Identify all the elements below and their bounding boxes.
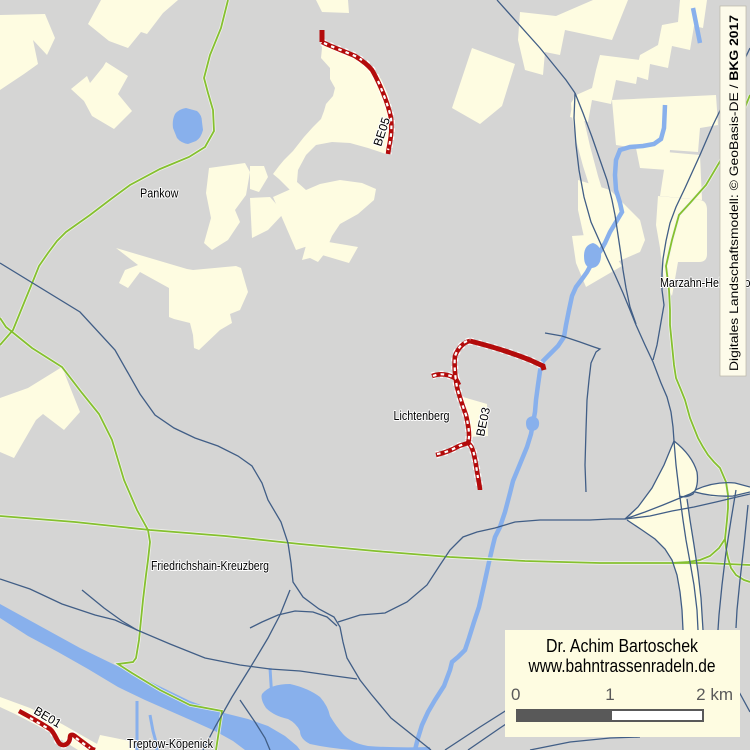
svg-text:Friedrichshain-Kreuzberg: Friedrichshain-Kreuzberg bbox=[151, 559, 269, 573]
svg-text:1: 1 bbox=[605, 685, 614, 704]
svg-text:Digitales Landschaftsmodell: ©: Digitales Landschaftsmodell: © GeoBasis-… bbox=[727, 15, 741, 371]
svg-text:Dr. Achim Bartoschek: Dr. Achim Bartoschek bbox=[546, 636, 699, 656]
svg-text:Lichtenberg: Lichtenberg bbox=[394, 408, 450, 423]
svg-text:www.bahntrassenradeln.de: www.bahntrassenradeln.de bbox=[528, 656, 716, 676]
svg-text:2 km: 2 km bbox=[696, 685, 733, 704]
svg-text:Pankow: Pankow bbox=[140, 186, 179, 201]
svg-text:Treptow-Köpenick: Treptow-Köpenick bbox=[127, 736, 213, 750]
svg-text:0: 0 bbox=[511, 685, 520, 704]
